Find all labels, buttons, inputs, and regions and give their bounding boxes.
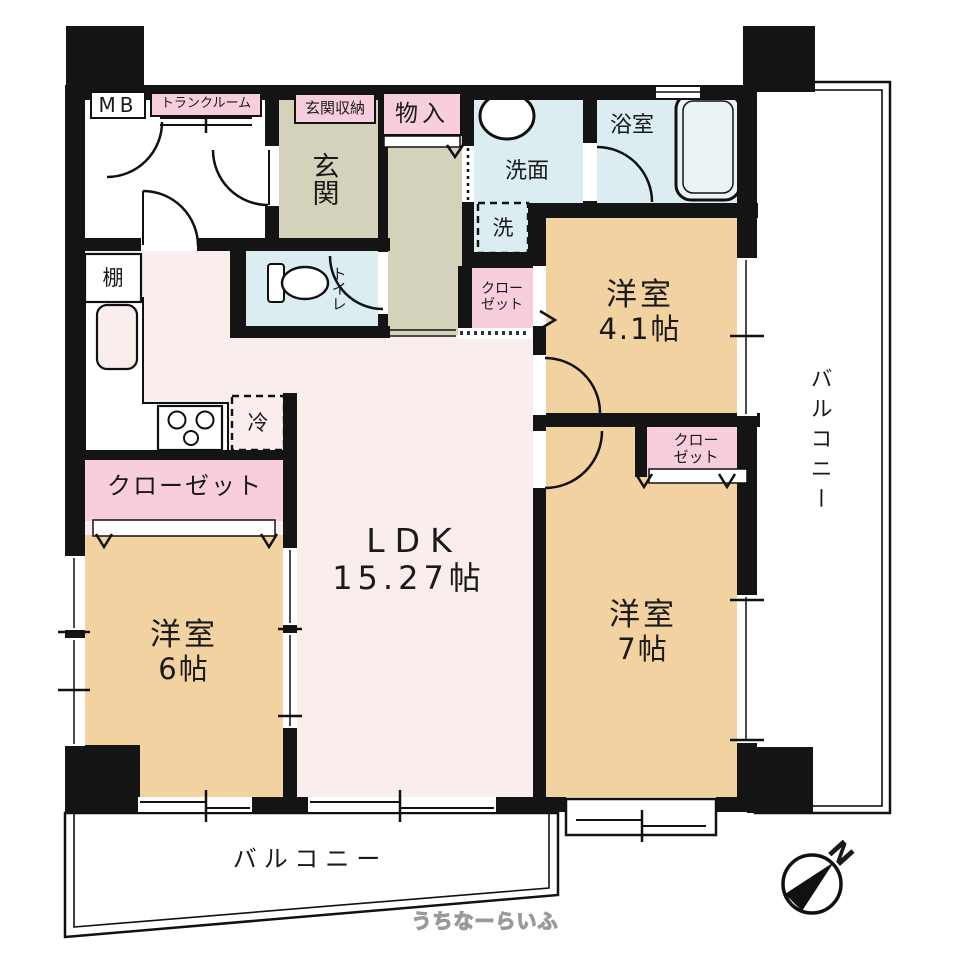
western-room-a-label: 洋室 4.1帖 <box>550 266 730 358</box>
door-gap-trunk-bottom <box>141 238 197 251</box>
bathtub <box>676 94 740 200</box>
bathroom-label: 浴室 <box>598 112 666 140</box>
room-c-name: 洋室 <box>150 618 218 654</box>
room-a-name: 洋室 <box>606 278 674 314</box>
closet-a-label-line2: ゼット <box>481 297 523 313</box>
window-left-1 <box>65 556 85 630</box>
wall-closet-c-top <box>80 450 287 460</box>
washroom-label: 洗面 <box>492 158 562 186</box>
wall-stub-bottom-center <box>275 797 313 813</box>
ldk-name: LDK <box>356 522 461 560</box>
room-a-size: 4.1帖 <box>598 313 681 346</box>
entrance-label: 玄関 <box>303 146 343 212</box>
door-gap-washroom <box>462 146 474 202</box>
door-gap-room-b <box>533 431 546 488</box>
wall-closet-b-stub <box>635 427 647 477</box>
room-b-size: 7帖 <box>617 633 668 666</box>
wall-toilet-left <box>230 238 246 338</box>
wall-washroom-bottom <box>528 203 758 218</box>
closet-b-track <box>649 469 747 483</box>
toilet-label: トイレ <box>328 255 348 321</box>
toilet-bowl <box>282 267 328 299</box>
ldk-size: 15.27帖 <box>332 560 486 597</box>
wall-toilet-bottom <box>230 326 390 338</box>
western-room-c-label: 洋室 6帖 <box>94 606 274 698</box>
closet-c-label: クローゼット <box>85 460 285 514</box>
room-c-size: 6帖 <box>158 653 209 686</box>
kitchen-sink <box>97 305 137 369</box>
western-room-b-label: 洋室 7帖 <box>553 586 733 678</box>
window-room-b <box>737 595 757 743</box>
door-gap-toilet <box>378 252 388 314</box>
entrance-storage-label: 玄関収納 <box>294 93 376 124</box>
pillar-bottom-left <box>66 745 140 811</box>
meter-box-label: MB <box>90 91 146 119</box>
wall-row1-bottom <box>65 238 390 251</box>
shelf-label: 棚 <box>87 262 139 294</box>
closet-c-track <box>93 520 275 536</box>
closet-b-label: クロー ゼット <box>649 428 743 470</box>
pillar-top-left <box>66 26 144 92</box>
pillar-bottom-right <box>747 747 813 813</box>
window-left-2 <box>65 638 85 746</box>
closet-a-label-line1: クロー <box>481 281 523 297</box>
balcony-bottom-label: バルコニー <box>228 844 392 876</box>
closet-a-label: クロー ゼット <box>472 270 532 324</box>
door-gap-bathroom <box>583 143 597 201</box>
ldk-label: LDK 15.27帖 <box>309 514 509 604</box>
wall-closet-a-left <box>458 266 472 330</box>
room-b-name: 洋室 <box>609 598 677 634</box>
window-bottom-ldk <box>308 797 496 812</box>
door-gap-room-a <box>533 355 546 415</box>
wall-room-a-b-divider <box>533 413 760 427</box>
balcony-right-label: バルコニー <box>800 362 838 522</box>
window-bottom-room-c <box>138 797 252 812</box>
door-gap-closet-a <box>533 266 546 326</box>
door-gap-trunk-right <box>265 146 279 206</box>
washing-machine-label: 洗 <box>478 205 528 251</box>
storage-label: 物入 <box>382 92 462 136</box>
closet-b-label-line2: ゼット <box>673 449 718 466</box>
pillar-top-right <box>743 26 815 92</box>
watermark: うちなーらいふ <box>412 905 558 937</box>
trunk-room-label: トランクルーム <box>150 92 262 117</box>
refrigerator-label: 冷 <box>234 400 282 446</box>
closet-b-label-line1: クロー <box>673 432 718 449</box>
floor-plan: MB トランクルーム 玄関収納 物入 玄関 洗面 洗 浴室 トイレ 棚 冷 クロ… <box>0 0 960 960</box>
stove <box>158 406 222 450</box>
